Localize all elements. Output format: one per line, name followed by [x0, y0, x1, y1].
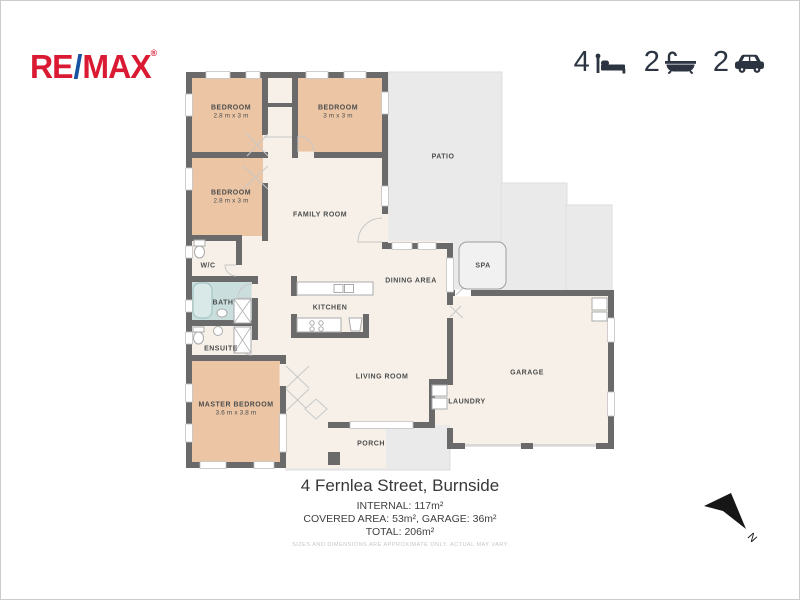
covered-area: COVERED AREA: 53m², GARAGE: 36m²: [0, 513, 800, 526]
laundry-unit: [432, 385, 447, 396]
kitchen-sink: [334, 285, 343, 293]
fridge: [349, 318, 362, 331]
bathtub: [193, 283, 212, 318]
bedroom3-fill: [192, 158, 263, 236]
wc-toilet: [194, 240, 205, 246]
property-address: 4 Fernlea Street, Burnside: [0, 476, 800, 496]
garage-door-left: [465, 444, 521, 447]
stove: [310, 321, 314, 325]
garage-floor: [450, 290, 612, 447]
garage-door-right: [533, 444, 596, 447]
master-bedroom-fill: [192, 360, 281, 463]
total-area: TOTAL: 206m²: [0, 526, 800, 539]
flyer-page: RE/MAX® 4 2: [0, 0, 800, 600]
garage-cabinet: [592, 298, 607, 310]
patio-area-ext2: [566, 205, 612, 295]
size-disclaimer: SIZES AND DIMENSIONS ARE APPROXIMATE ONL…: [0, 542, 800, 548]
bedroom1-fill: [192, 78, 263, 153]
patio-area-ext1: [501, 183, 567, 295]
ensuite-toilet: [193, 327, 204, 332]
internal-area: INTERNAL: 117m²: [0, 500, 800, 513]
ensuite-basin: [214, 327, 223, 336]
spa-tub: [459, 242, 506, 289]
property-summary: 4 Fernlea Street, Burnside INTERNAL: 117…: [0, 476, 800, 548]
bath-basin: [217, 309, 227, 317]
